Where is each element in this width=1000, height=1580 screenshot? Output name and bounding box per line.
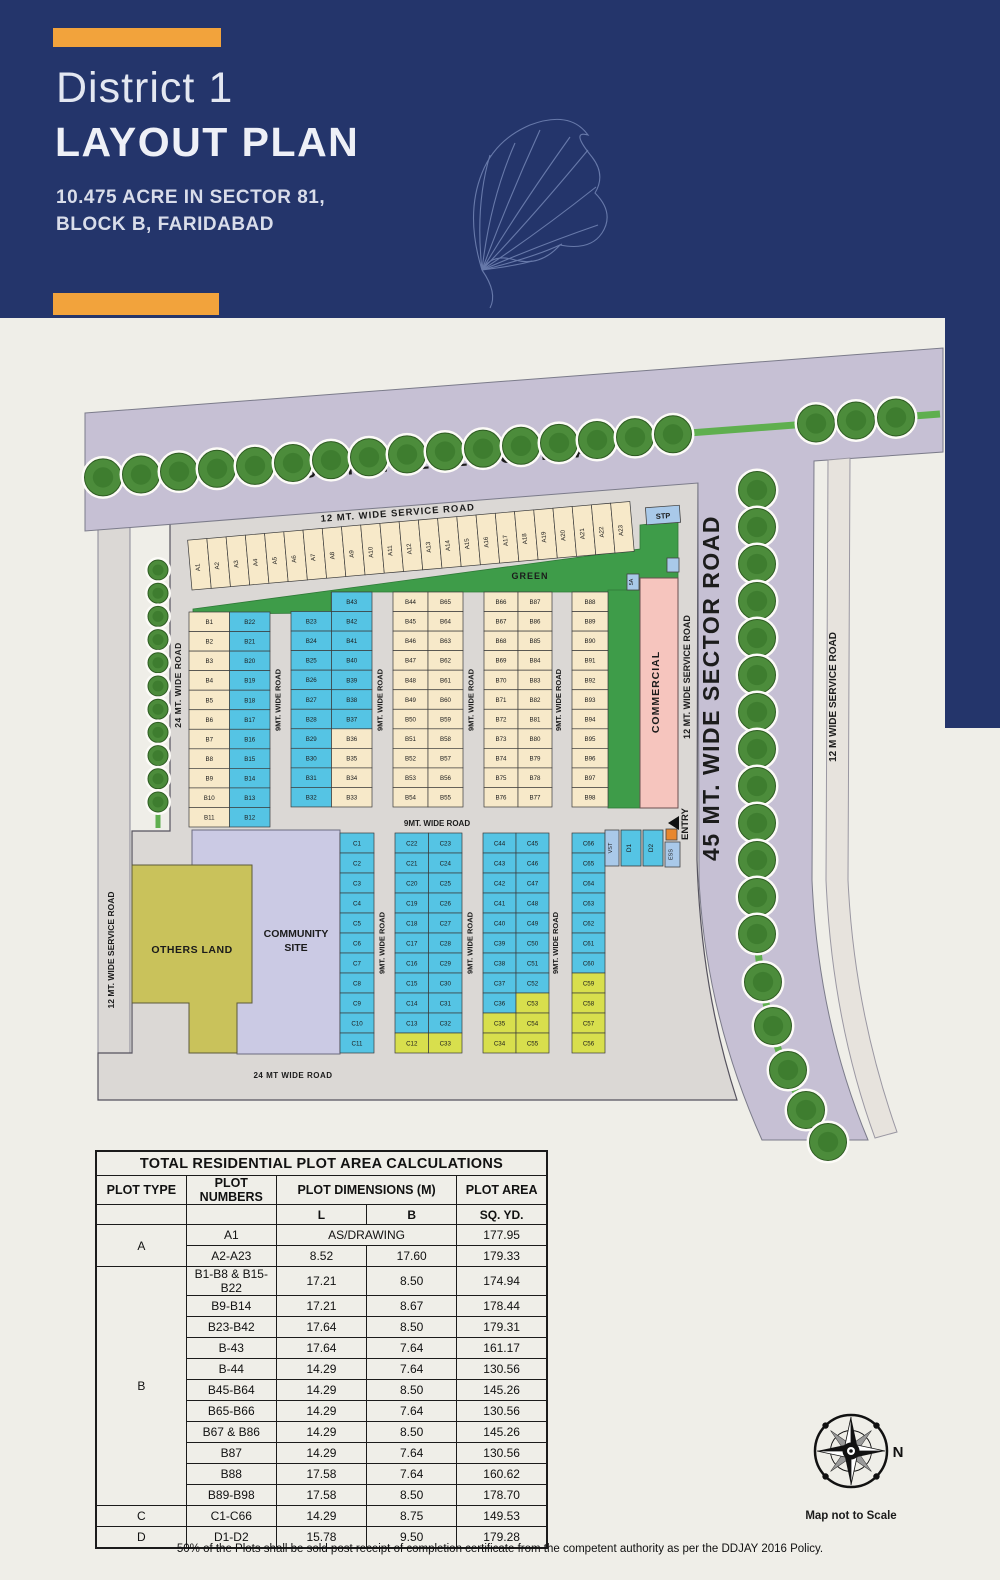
plot-area-cell: 161.17: [457, 1338, 547, 1359]
road-9h-label: 9MT. WIDE ROAD: [404, 819, 470, 828]
plot-label: B6: [205, 717, 213, 724]
road-24-bottom-label: 24 MT WIDE ROAD: [253, 1071, 332, 1080]
road-9-label: 9MT. WIDE ROAD: [467, 668, 476, 731]
plot-label: A17: [502, 534, 510, 546]
compass-north-label: N: [893, 1444, 904, 1461]
plot-label: C14: [406, 1000, 418, 1007]
plot-label: B53: [405, 775, 417, 782]
plot-label: B49: [405, 697, 417, 704]
plot-b-cell: 8.50: [367, 1422, 457, 1443]
plot-numbers-cell: B89-B98: [186, 1485, 276, 1506]
plot-label: B86: [529, 619, 541, 626]
road-9-label: 9MT. WIDE ROAD: [466, 911, 475, 974]
sub-header: SQ. YD.: [457, 1205, 547, 1225]
plot-area-cell: 130.56: [457, 1359, 547, 1380]
plot-label: B89: [584, 619, 596, 626]
plot-l-cell: 8.52: [276, 1246, 366, 1267]
plot-label: C38: [494, 960, 506, 967]
plot-label: B92: [584, 677, 596, 684]
plot-numbers-cell: B45-B64: [186, 1380, 276, 1401]
plot-label: C44: [494, 840, 506, 847]
plot-l-cell: 17.64: [276, 1317, 366, 1338]
policy-footnote: 50% of the Plots shall be sold post rece…: [0, 1543, 1000, 1555]
plot-label: C35: [494, 1020, 506, 1027]
green-strip: [608, 590, 640, 808]
tree-icon-core: [153, 681, 164, 692]
tree-icon-core: [778, 1060, 798, 1080]
plot-label: C36: [494, 1000, 506, 1007]
plot-label: B65: [440, 599, 452, 606]
tree-icon-core: [747, 480, 767, 500]
plot-label: B67: [495, 619, 507, 626]
plot-b-cell: 8.50: [367, 1317, 457, 1338]
plot-l-cell: 17.21: [276, 1267, 366, 1296]
plot-label: B10: [204, 795, 216, 802]
community-site-label: SITE: [284, 942, 307, 954]
plot-label: A3: [233, 559, 241, 568]
compass-rose: N: [815, 1415, 903, 1487]
plot-l-cell: 17.58: [276, 1485, 366, 1506]
tree-icon-core: [153, 704, 164, 715]
plot-label: B77: [529, 795, 541, 802]
plot-label: A5: [271, 556, 279, 565]
tree-icon-core: [587, 430, 607, 450]
plot-label: B39: [346, 677, 358, 684]
tree-icon-core: [131, 464, 151, 484]
plot-label: B18: [244, 697, 256, 704]
plot-numbers-cell: B23-B42: [186, 1317, 276, 1338]
plot-label: A1: [194, 563, 202, 572]
stp-box: STP: [645, 505, 680, 525]
tree-icon-core: [846, 410, 866, 430]
plot-label: C50: [527, 940, 539, 947]
tree-icon-core: [747, 924, 767, 944]
plot-label: A16: [483, 536, 491, 548]
tree-icon-core: [435, 441, 455, 461]
tree-icon-core: [359, 447, 379, 467]
plot-label: B79: [529, 755, 541, 762]
plot-label: B64: [440, 619, 452, 626]
service-road-right-outer: [826, 458, 897, 1138]
plot-l-cell: 14.29: [276, 1380, 366, 1401]
plot-label: B30: [306, 755, 318, 762]
plot-label: B31: [306, 775, 318, 782]
plot-label: C57: [583, 1020, 595, 1027]
plot-label: B12: [244, 815, 256, 822]
plot-numbers-cell: C1-C66: [186, 1506, 276, 1527]
plot-label: C48: [527, 900, 539, 907]
community-site-label: COMMUNITY: [264, 928, 329, 940]
plot-label: C16: [406, 960, 418, 967]
plot-b-cell: 8.50: [367, 1380, 457, 1401]
plot-label: B56: [440, 775, 452, 782]
plot-label: B54: [405, 795, 417, 802]
tree-icon-core: [283, 453, 303, 473]
plot-label: B98: [584, 795, 596, 802]
plot-label: B69: [495, 658, 507, 665]
plot-label: B50: [405, 716, 417, 723]
plot-b-cell: 7.64: [367, 1359, 457, 1380]
plot-label: C41: [494, 900, 506, 907]
compass-part: [822, 1422, 828, 1428]
plot-label: B22: [244, 619, 256, 626]
plot-type-cell: B: [96, 1267, 186, 1506]
plot-numbers-cell: A1: [186, 1225, 276, 1246]
plot-label: B93: [584, 697, 596, 704]
plot-b-cell: 7.64: [367, 1464, 457, 1485]
plot-label: B62: [440, 658, 452, 665]
plot-label: A8: [329, 551, 337, 560]
plot-numbers-cell: B88: [186, 1464, 276, 1485]
box-5a-label: 5A: [629, 578, 635, 585]
plot-label: B36: [346, 736, 358, 743]
plot-label: B83: [529, 677, 541, 684]
plot-b-cell: 8.50: [367, 1267, 457, 1296]
plot-label: C42: [494, 880, 506, 887]
road-9-label: 9MT. WIDE ROAD: [274, 668, 283, 731]
plot-label: B23: [306, 619, 318, 626]
column-header: PLOT DIMENSIONS (M): [276, 1176, 456, 1205]
plot-b-cell: 17.60: [367, 1246, 457, 1267]
plot-label: B9: [205, 775, 213, 782]
tree-icon-core: [625, 427, 645, 447]
plot-label: A21: [579, 527, 587, 539]
plot-label: B73: [495, 736, 507, 743]
tree-icon-core: [93, 467, 113, 487]
plot-label: B96: [584, 755, 596, 762]
plot-l-cell: 17.64: [276, 1338, 366, 1359]
plot-label: B4: [205, 678, 213, 685]
plot-area-cell: 179.31: [457, 1317, 547, 1338]
tree-icon-core: [397, 444, 417, 464]
plot-label: C23: [440, 840, 452, 847]
plot-label: B8: [205, 756, 213, 763]
utility-box: [667, 558, 679, 572]
plot-label: B90: [584, 638, 596, 645]
plot-label: B1: [205, 619, 213, 626]
plot-label: B17: [244, 717, 256, 724]
plot-label: A9: [348, 549, 356, 558]
plot-numbers-cell: B1-B8 & B15-B22: [186, 1267, 276, 1296]
plot-label: C40: [494, 920, 506, 927]
plot-l-cell: 14.29: [276, 1443, 366, 1464]
plot-label: B55: [440, 795, 452, 802]
plot-l-cell: 17.58: [276, 1464, 366, 1485]
plot-area-cell: 179.33: [457, 1246, 547, 1267]
plot-b-cell: 8.75: [367, 1506, 457, 1527]
plot-label: C22: [406, 840, 418, 847]
plot-label: C55: [527, 1040, 539, 1047]
plot-numbers-cell: B65-B66: [186, 1401, 276, 1422]
plot-label: C17: [406, 940, 418, 947]
tree-icon-core: [245, 456, 265, 476]
plot-label: C19: [406, 900, 418, 907]
plot-label: B29: [306, 736, 318, 743]
plot-label: A15: [463, 537, 471, 549]
entry-gate-box: [666, 829, 677, 840]
plot-label: C63: [583, 900, 595, 907]
tree-icon-core: [153, 565, 164, 576]
compass-part: [849, 1449, 853, 1453]
plot-area-table-container: TOTAL RESIDENTIAL PLOT AREA CALCULATIONS…: [95, 1150, 548, 1549]
plot-numbers-cell: A2-A23: [186, 1246, 276, 1267]
plot-label: C21: [406, 860, 418, 867]
plot-numbers-cell: B-43: [186, 1338, 276, 1359]
plot-label: A12: [406, 543, 414, 555]
plot-label: B21: [244, 639, 256, 646]
road-9-label: 9MT. WIDE ROAD: [554, 668, 563, 731]
plot-type-cell: C: [96, 1506, 186, 1527]
table-cell: [96, 1205, 186, 1225]
plot-label: B78: [529, 775, 541, 782]
plot-label: D2: [648, 843, 655, 852]
plot-label: A6: [291, 554, 299, 563]
plot-label: C66: [583, 840, 595, 847]
plot-label: C33: [440, 1040, 452, 1047]
plot-label: B27: [306, 697, 318, 704]
tree-icon-core: [753, 972, 773, 992]
plot-label: B41: [346, 638, 358, 645]
plot-label: B2: [205, 639, 213, 646]
plot-label: B47: [405, 658, 417, 665]
plot-label: C1: [353, 840, 361, 847]
plot-label: B74: [495, 755, 507, 762]
compass-caption: Map not to Scale: [805, 1510, 896, 1522]
plot-label: B59: [440, 716, 452, 723]
plot-label: B84: [529, 658, 541, 665]
tree-icon-core: [153, 750, 164, 761]
plot-label: B85: [529, 638, 541, 645]
plot-area-cell: 160.62: [457, 1464, 547, 1485]
plot-label: A20: [560, 529, 568, 541]
plot-label: B51: [405, 736, 417, 743]
plot-label: B71: [495, 697, 507, 704]
plot-label: B38: [346, 697, 358, 704]
plot-label: B34: [346, 775, 358, 782]
plot-label: B61: [440, 677, 452, 684]
plot-l-cell: 14.29: [276, 1422, 366, 1443]
plot-label: C11: [352, 1040, 363, 1047]
plot-label: B43: [346, 599, 358, 606]
plot-label: C61: [583, 940, 595, 947]
plot-label: C9: [353, 1000, 361, 1007]
plot-b-cell: 7.64: [367, 1338, 457, 1359]
plot-label: B15: [244, 756, 256, 763]
tree-icon-core: [747, 591, 767, 611]
plot-b-cell: 7.64: [367, 1401, 457, 1422]
plot-label: C56: [583, 1040, 595, 1047]
tree-icon-core: [747, 813, 767, 833]
plot-label: B80: [529, 736, 541, 743]
plot-label: B48: [405, 677, 417, 684]
compass-part: [873, 1422, 879, 1428]
vst-label: VST: [608, 842, 614, 853]
plot-label: A22: [598, 526, 606, 538]
plot-type-cell: A: [96, 1225, 186, 1267]
plot-label: C13: [406, 1020, 418, 1027]
plot-label: C8: [353, 980, 361, 987]
plot-label: B35: [346, 755, 358, 762]
plot-label: B57: [440, 755, 452, 762]
tree-icon-core: [747, 850, 767, 870]
plot-label: C31: [440, 1000, 452, 1007]
plot-label: B81: [529, 716, 541, 723]
plot-label: C27: [440, 920, 452, 927]
plot-label: B25: [306, 658, 318, 665]
sector-road-right-label: 45 MT. WIDE SECTOR ROAD: [698, 515, 724, 861]
plot-label: B76: [495, 795, 507, 802]
service-road-right-inner-label: 12 MT. WIDE SERVICE ROAD: [682, 615, 692, 739]
plot-label: B13: [244, 795, 256, 802]
plot-label: B94: [584, 716, 596, 723]
road-9-label: 9MT. WIDE ROAD: [376, 668, 385, 731]
tree-icon-core: [153, 611, 164, 622]
stp-label: STP: [655, 511, 670, 521]
plot-label: C47: [527, 880, 539, 887]
plot-label: A14: [444, 539, 452, 551]
tree-icon-core: [549, 433, 569, 453]
plot-b-cell: 7.64: [367, 1443, 457, 1464]
tree-icon-core: [153, 727, 164, 738]
service-road-right-outer-label: 12 M WIDE SERVICE ROAD: [828, 632, 839, 762]
tree-icon-core: [663, 424, 683, 444]
tree-icon-core: [818, 1132, 838, 1152]
plot-label: B82: [529, 697, 541, 704]
road-9-label: 9MT. WIDE ROAD: [378, 911, 387, 974]
plot-area-cell: 149.53: [457, 1506, 547, 1527]
tree-icon-core: [511, 436, 531, 456]
plot-numbers-cell: B87: [186, 1443, 276, 1464]
plot-label: C25: [440, 880, 452, 887]
tree-icon-core: [153, 588, 164, 599]
plot-label: C32: [440, 1020, 452, 1027]
plot-label: C3: [353, 880, 361, 887]
plot-label: C18: [406, 920, 418, 927]
table-title: TOTAL RESIDENTIAL PLOT AREA CALCULATIONS: [96, 1151, 547, 1176]
tree-icon-core: [796, 1100, 816, 1120]
plot-label: B95: [584, 736, 596, 743]
tree-icon-core: [747, 776, 767, 796]
plot-dims-cell: AS/DRAWING: [276, 1225, 456, 1246]
plot-label: B11: [204, 815, 215, 822]
plot-label: A2: [214, 561, 222, 570]
tree-icon-core: [153, 773, 164, 784]
plot-label: A4: [252, 558, 260, 567]
plot-label: B63: [440, 638, 452, 645]
plot-label: C15: [406, 980, 418, 987]
plot-label: C34: [494, 1040, 506, 1047]
plot-label: B75: [495, 775, 507, 782]
road-24-left-label: 24 MT. WIDE ROAD: [173, 642, 183, 727]
plot-b-cell: 8.67: [367, 1296, 457, 1317]
table-cell: [186, 1205, 276, 1225]
plot-label: D1: [626, 843, 633, 852]
plot-area-cell: 177.95: [457, 1225, 547, 1246]
plot-label: A13: [425, 541, 433, 553]
tree-icon-core: [321, 450, 341, 470]
plot-label: C59: [583, 980, 595, 987]
plot-label: C39: [494, 940, 506, 947]
plot-label: C45: [527, 840, 539, 847]
plot-l-cell: 17.21: [276, 1296, 366, 1317]
plot-area-cell: 145.26: [457, 1422, 547, 1443]
tree-icon-core: [207, 459, 227, 479]
plot-l-cell: 14.29: [276, 1506, 366, 1527]
plot-label: B68: [495, 638, 507, 645]
plot-label: B16: [244, 736, 256, 743]
plot-area-table: TOTAL RESIDENTIAL PLOT AREA CALCULATIONS…: [95, 1150, 548, 1549]
plot-label: A23: [617, 524, 625, 536]
plot-label: C43: [494, 860, 506, 867]
plot-label: C49: [527, 920, 539, 927]
plot-label: B60: [440, 697, 452, 704]
plot-label: C53: [527, 1000, 539, 1007]
plot-b-cell: 8.50: [367, 1485, 457, 1506]
plot-label: C30: [440, 980, 452, 987]
plot-label: C37: [494, 980, 506, 987]
tree-icon-core: [169, 461, 189, 481]
plot-label: B66: [495, 599, 507, 606]
plot-label: C5: [353, 920, 361, 927]
plot-label: B5: [205, 697, 213, 704]
tree-icon-core: [747, 554, 767, 574]
plot-label: B24: [306, 638, 318, 645]
plot-area-cell: 178.44: [457, 1296, 547, 1317]
plot-label: C4: [353, 900, 361, 907]
plot-label: B32: [306, 794, 318, 801]
plot-label: B37: [346, 716, 358, 723]
tree-icon-core: [747, 739, 767, 759]
plot-l-cell: 14.29: [276, 1401, 366, 1422]
plot-label: B87: [529, 599, 541, 606]
plot-label: B42: [346, 619, 358, 626]
plot-label: C46: [527, 860, 539, 867]
plot-label: C52: [527, 980, 539, 987]
plot-area-cell: 174.94: [457, 1267, 547, 1296]
plot-label: B3: [205, 658, 213, 665]
plot-label: B45: [405, 619, 417, 626]
tree-icon-core: [153, 657, 164, 668]
plot-numbers-cell: B-44: [186, 1359, 276, 1380]
plot-label: B52: [405, 755, 417, 762]
tree-icon-core: [747, 628, 767, 648]
plot-label: A19: [540, 531, 548, 543]
plot-label: B26: [306, 677, 318, 684]
plot-area-cell: 130.56: [457, 1443, 547, 1464]
green-label: GREEN: [511, 571, 548, 581]
tree-icon-core: [763, 1016, 783, 1036]
plot-label: B7: [205, 736, 213, 743]
sub-header: B: [367, 1205, 457, 1225]
plot-label: B40: [346, 658, 358, 665]
tree-icon-core: [747, 665, 767, 685]
plot-label: A10: [367, 546, 375, 558]
column-header: PLOT NUMBERS: [186, 1176, 276, 1205]
plot-label: C20: [406, 880, 418, 887]
plot-label: C6: [353, 940, 361, 947]
tree-icon-core: [473, 438, 493, 458]
plot-label: C65: [583, 860, 595, 867]
plot-label: C62: [583, 920, 595, 927]
plot-label: C51: [527, 960, 539, 967]
ess-label: ESS: [669, 849, 675, 860]
plot-label: C26: [440, 900, 452, 907]
others-land-label: OTHERS LAND: [151, 944, 232, 956]
plot-label: B91: [584, 658, 596, 665]
tree-icon-core: [153, 634, 164, 645]
plot-label: B72: [495, 716, 507, 723]
plot-label: B14: [244, 775, 256, 782]
